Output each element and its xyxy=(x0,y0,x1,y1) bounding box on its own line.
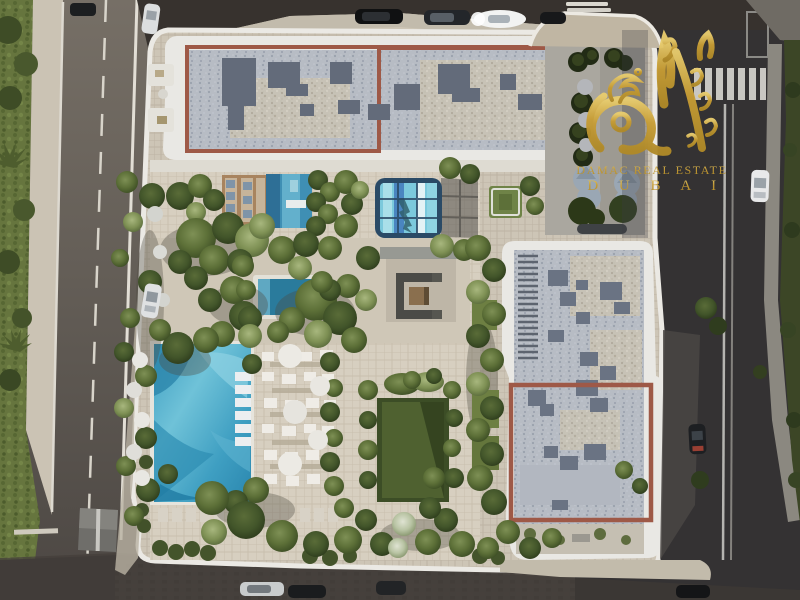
svg-text:DAMAC REAL ESTATE: DAMAC REAL ESTATE xyxy=(576,163,727,177)
svg-text:D U B A I: D U B A I xyxy=(587,178,724,194)
